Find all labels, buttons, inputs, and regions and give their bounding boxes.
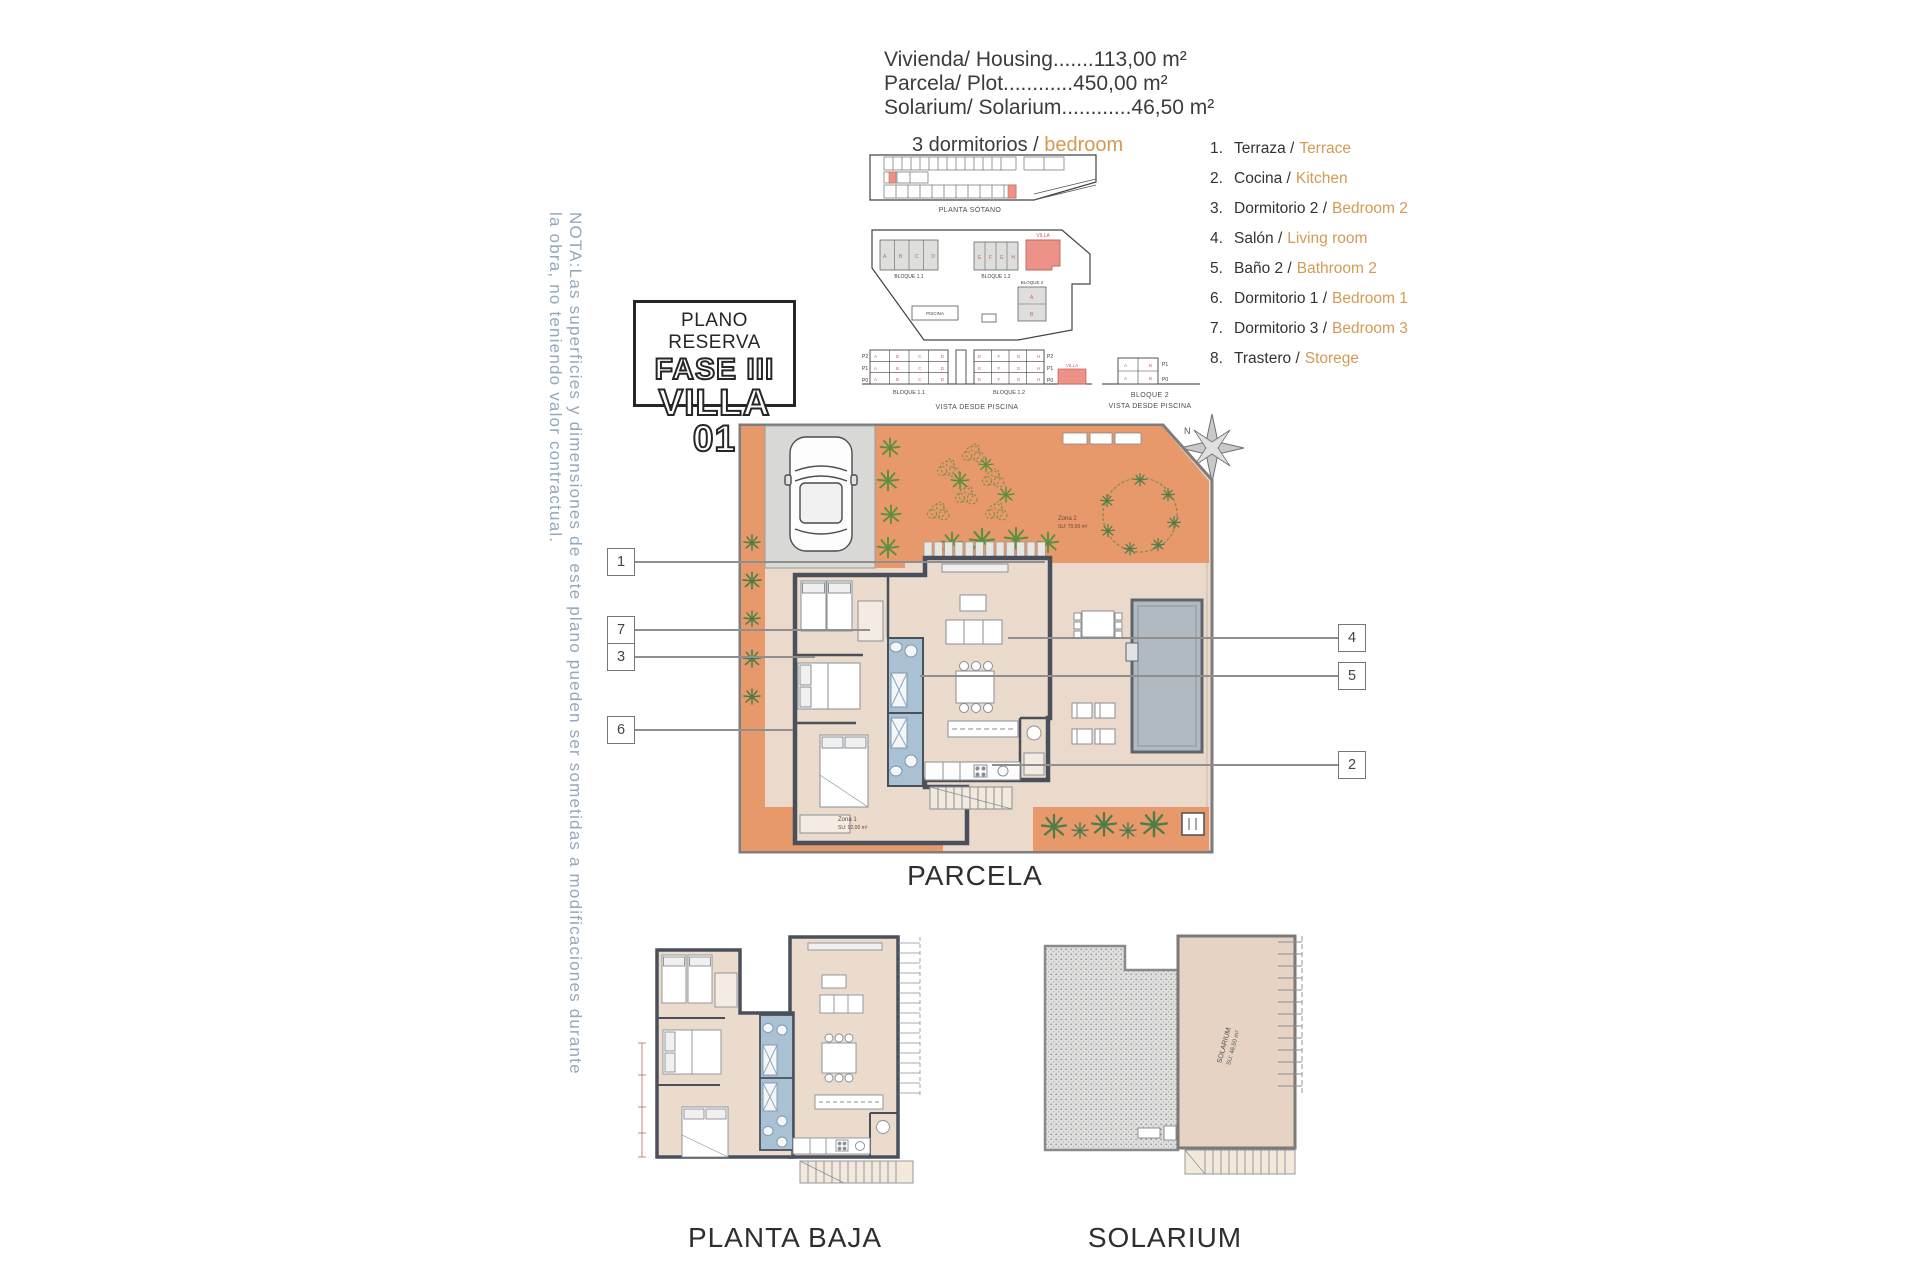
title-strip-boxes — [1063, 433, 1141, 444]
elevation-diagram: A B C D A B C D A B C D BLOQUE 1.1 E F G… — [862, 344, 1092, 402]
callout-line-7 — [633, 629, 870, 631]
bloque2-elevation: A B A B P1 P0 — [1100, 350, 1205, 392]
highlight-storage-cell — [889, 172, 896, 183]
plan-sheet: Vivienda/ Housing.......113,00 m² Parcel… — [0, 0, 1920, 1280]
bed-middle — [663, 1030, 721, 1074]
legend-item-dormitorio1: 6.Dormitorio 1 /Bedroom 1 — [1210, 290, 1408, 320]
zona2-label: Zona 2 — [1058, 516, 1077, 522]
svg-text:BLOQUE 2: BLOQUE 2 — [1021, 280, 1044, 285]
title-fase: FASE III — [636, 355, 793, 385]
legend-item-cocina: 2.Cocina /Kitchen — [1210, 170, 1408, 200]
planta-baja-label: PLANTA BAJA — [660, 1222, 910, 1254]
outdoor-dining — [1074, 611, 1122, 638]
callout-line-5 — [920, 675, 1340, 677]
svg-text:VILLA: VILLA — [1066, 363, 1078, 368]
washer — [877, 1121, 890, 1134]
piscina-block: PISCINA — [912, 306, 958, 320]
legend-item-terraza: 1.Terraza /Terrace — [1210, 140, 1408, 170]
callout-4: 4 — [1338, 624, 1366, 652]
svg-text:P1: P1 — [1162, 362, 1168, 368]
svg-text:BLOQUE 1.1: BLOQUE 1.1 — [894, 274, 923, 280]
elevation-caption: VISTA DESDE PISCINA — [862, 404, 1092, 411]
solarium-label: SOLARIUM — [1040, 1222, 1290, 1254]
parcela-label: PARCELA — [850, 860, 1100, 892]
driveway — [765, 426, 875, 568]
elevation-villa: VILLA — [1058, 363, 1086, 384]
callout-7: 7 — [607, 616, 635, 644]
zona1-label: Zona 1 — [838, 817, 857, 823]
planta-baja-plan — [630, 935, 930, 1190]
basement-diagram — [866, 152, 1106, 214]
callout-2: 2 — [1338, 751, 1366, 779]
callout-line-4 — [1008, 637, 1340, 639]
legend-item-dormitorio2: 3.Dormitorio 2 /Bedroom 2 — [1210, 200, 1408, 230]
car-top-view — [785, 437, 857, 551]
svg-text:BLOQUE 1.1: BLOQUE 1.1 — [893, 390, 925, 396]
basement-caption: PLANTA SÓTANO — [890, 207, 1050, 214]
stairs — [800, 1161, 913, 1183]
callout-3: 3 — [607, 643, 635, 671]
svg-text:P1: P1 — [1047, 366, 1053, 372]
legend-item-bano2: 5.Baño 2 /Bathroom 2 — [1210, 260, 1408, 290]
callout-1: 1 — [607, 548, 635, 576]
bloque2-vista-caption: VISTA DESDE PISCINA — [1090, 403, 1210, 410]
legend-item-trastero: 8.Trastero /Storege — [1210, 350, 1408, 380]
washer — [1027, 726, 1041, 740]
terrace-left-strip — [741, 426, 765, 851]
roof-area — [1045, 946, 1178, 1150]
callout-line-2 — [992, 764, 1340, 766]
highlight-parking-cell — [1008, 185, 1016, 198]
siteplan-diagram: A B C D BLOQUE 1.1 E F G H BLOQUE 1.2 VI… — [866, 226, 1106, 346]
parcela-plan: Zona 2 SU: 79,00 m² — [738, 423, 1215, 855]
callout-line-1 — [633, 561, 1045, 563]
surface-specs: Vivienda/ Housing.......113,00 m² Parcel… — [884, 48, 1214, 120]
svg-text:BLOQUE 1.2: BLOQUE 1.2 — [981, 274, 1010, 280]
stairs — [1185, 1150, 1295, 1174]
dimension-ruler — [638, 1043, 646, 1157]
title-plano-reserva: PLANO RESERVA — [636, 310, 793, 354]
exterior-stairs — [930, 787, 1012, 809]
spec-plot: Parcela/ Plot............450,00 m² — [884, 72, 1214, 96]
svg-text:P0: P0 — [862, 378, 868, 384]
elevation-lift — [956, 350, 966, 384]
svg-text:P0: P0 — [1047, 378, 1053, 384]
bed-dormitorio2 — [798, 663, 860, 709]
disclaimer-note: NOTA:Las superficies y dimensiones de es… — [545, 212, 585, 1092]
svg-text:P2: P2 — [1047, 354, 1053, 360]
svg-text:PISCINA: PISCINA — [926, 311, 944, 316]
svg-text:BLOQUE 1.2: BLOQUE 1.2 — [993, 390, 1025, 396]
svg-text:SU: 79,00 m²: SU: 79,00 m² — [1058, 524, 1088, 530]
pergola-slats — [898, 937, 920, 1097]
svg-text:SU: 92,00 m²: SU: 92,00 m² — [838, 825, 868, 831]
bloque2-caption: BLOQUE 2 — [1090, 392, 1210, 399]
legend-item-dormitorio3: 7.Dormitorio 3 /Bedroom 3 — [1210, 320, 1408, 350]
outdoor-shower-box — [1182, 813, 1204, 835]
spec-housing: Vivienda/ Housing.......113,00 m² — [884, 48, 1214, 72]
svg-text:P0: P0 — [1162, 377, 1168, 383]
spec-solarium: Solarium/ Solarium............46,50 m² — [884, 96, 1214, 120]
svg-text:P1: P1 — [862, 366, 868, 372]
room-legend: 1.Terraza /Terrace 2.Cocina /Kitchen 3.D… — [1210, 140, 1408, 380]
legend-item-salon: 4.Salón /Living room — [1210, 230, 1408, 260]
callout-5: 5 — [1338, 662, 1366, 690]
elevation-bloque11: A B C D A B C D A B C D BLOQUE 1.1 — [870, 350, 948, 396]
reservation-title-box: PLANO RESERVA FASE III VILLA 01 — [633, 300, 796, 407]
solarium-plan: SOLARIUM SU: 46,50 m² — [1030, 928, 1310, 1186]
callout-line-3 — [633, 656, 815, 658]
callout-line-6 — [633, 729, 793, 731]
svg-text:P2: P2 — [862, 354, 868, 360]
svg-text:VILLA: VILLA — [1036, 233, 1050, 239]
callout-6: 6 — [607, 716, 635, 744]
bed-bottom — [682, 1107, 728, 1157]
elevation-bloque12: E F G H E F G H E F G H BLOQUE 1.2 — [974, 350, 1044, 396]
